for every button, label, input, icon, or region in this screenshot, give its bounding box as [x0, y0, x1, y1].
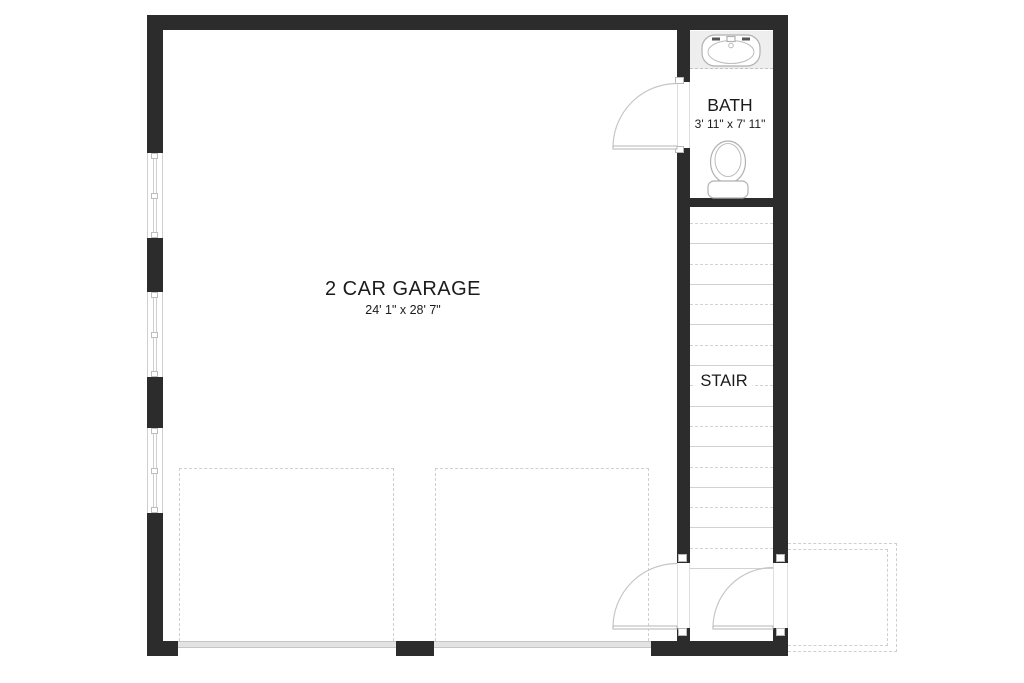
- stair-garage-door-arc: [613, 564, 677, 628]
- stair-room-label: STAIR: [695, 370, 752, 393]
- bath-room-size: 3' 11" x 7' 11": [695, 117, 766, 131]
- sink-faucet: [727, 37, 735, 42]
- bathroom-sink-icon: [702, 35, 760, 66]
- sink-handle-left: [712, 38, 720, 41]
- stair-room-name: STAIR: [695, 370, 752, 393]
- stair-garage-door-leaf: [613, 626, 677, 629]
- bath-door-leaf: [613, 146, 677, 149]
- garage-room-label: 2 CAR GARAGE 24' 1" x 28' 7": [325, 279, 481, 317]
- stair-garage-door-swing: [613, 564, 677, 630]
- toilet-icon: [708, 141, 748, 198]
- exit-door-swing: [713, 568, 773, 630]
- bath-door-swing: [613, 84, 677, 150]
- garage-room-size: 24' 1" x 28' 7": [325, 303, 481, 317]
- bath-room-label: BATH 3' 11" x 7' 11": [695, 97, 766, 131]
- plan-symbols-layer: [0, 0, 1024, 683]
- bath-door-arc: [613, 84, 677, 148]
- toilet-tank: [708, 181, 748, 198]
- floor-plan-canvas: 2 CAR GARAGE 24' 1" x 28' 7" BATH 3' 11"…: [0, 0, 1024, 683]
- exit-door-arc: [713, 568, 773, 628]
- exit-door-leaf: [713, 626, 773, 629]
- bath-room-name: BATH: [695, 97, 766, 115]
- garage-room-name: 2 CAR GARAGE: [325, 279, 481, 299]
- sink-handle-right: [742, 38, 750, 41]
